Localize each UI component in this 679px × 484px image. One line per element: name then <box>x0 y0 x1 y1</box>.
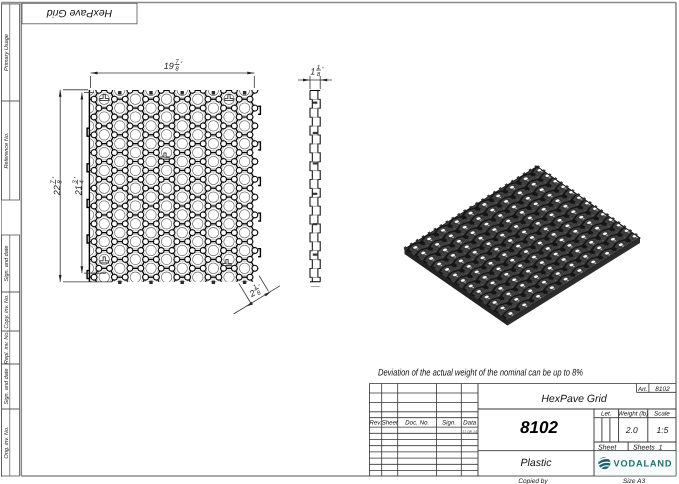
svg-text:Primary Usage: Primary Usage <box>3 34 10 71</box>
svg-text:″: ″ <box>180 61 182 67</box>
svg-text:Rev.: Rev. <box>369 420 381 427</box>
svg-text:″: ″ <box>74 177 80 179</box>
svg-text:″: ″ <box>322 66 324 72</box>
svg-text:Copied by: Copied by <box>518 478 548 484</box>
svg-text:Sheet: Sheet <box>382 420 398 427</box>
svg-text:Size A3: Size A3 <box>623 478 646 484</box>
svg-text:1:5: 1:5 <box>656 425 668 435</box>
svg-text:22: 22 <box>52 185 62 196</box>
svg-text:Repl. inv. No.: Repl. inv. No. <box>3 331 10 364</box>
svg-text:Scale: Scale <box>654 411 670 418</box>
svg-text:Sign. and date: Sign. and date <box>3 245 10 281</box>
svg-text:Doc. No.: Doc. No. <box>405 420 429 427</box>
svg-text:Sign. and date: Sign. and date <box>3 368 10 404</box>
svg-text:Data: Data <box>463 420 477 427</box>
svg-text:Art.: Art. <box>637 386 647 393</box>
svg-text:Let.: Let. <box>601 411 612 418</box>
svg-text:Copy. inv. No.: Copy. inv. No. <box>3 294 10 328</box>
svg-text:Weight (lb): Weight (lb) <box>618 411 648 418</box>
svg-text:VODALAND: VODALAND <box>614 458 673 468</box>
svg-text:Sheet: Sheet <box>598 443 617 451</box>
svg-text:Plastic: Plastic <box>521 457 553 469</box>
svg-text:HexPave Grid: HexPave Grid <box>46 7 113 19</box>
svg-text:2.0: 2.0 <box>625 425 638 435</box>
svg-text:8102: 8102 <box>655 386 670 393</box>
svg-text:19: 19 <box>164 61 174 71</box>
svg-text:21: 21 <box>74 185 84 196</box>
svg-text:Sheets 1: Sheets 1 <box>633 443 663 451</box>
svg-text:Sign.: Sign. <box>442 420 456 427</box>
svg-text:1: 1 <box>310 66 315 76</box>
svg-text:″: ″ <box>52 177 58 179</box>
svg-text:Reference No.: Reference No. <box>3 132 10 168</box>
svg-text:HexPave Grid: HexPave Grid <box>541 393 608 405</box>
svg-text:8102: 8102 <box>520 418 558 437</box>
svg-text:Orig. inv. No.: Orig. inv. No. <box>3 426 10 458</box>
svg-text:11.08.14: 11.08.14 <box>462 429 478 434</box>
svg-text:Deviation of the actual weight: Deviation of the actual weight of the no… <box>378 368 583 379</box>
